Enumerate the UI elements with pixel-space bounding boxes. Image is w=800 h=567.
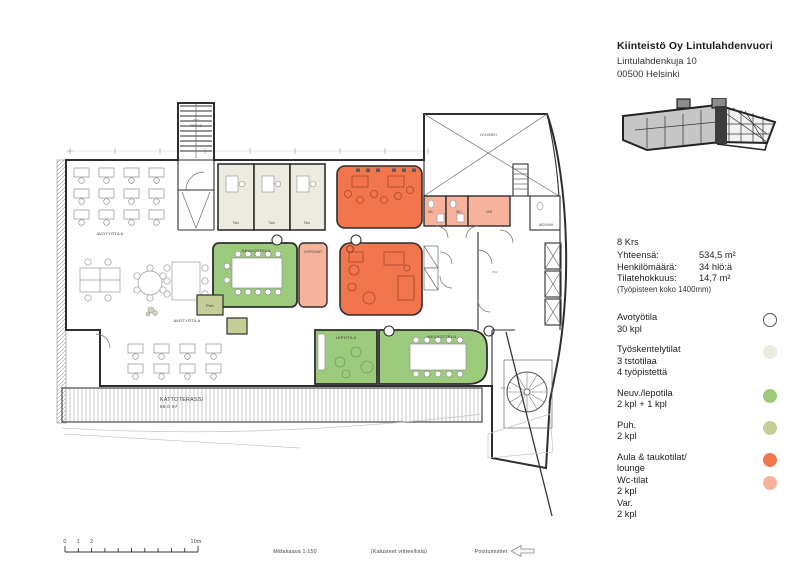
legend-line: 2 kpl + 1 kpl (617, 399, 673, 411)
legend-line: 2 kpl (617, 486, 648, 498)
legend-title: Työskentelytilat (617, 344, 681, 356)
stat-label: Yhteensä: (617, 250, 699, 260)
scale-tick-10m: 10m (191, 539, 202, 545)
label-neuvottelu-mid: NEUVOTTELU (242, 248, 271, 253)
label-tsto-3: Tsto (304, 221, 311, 225)
legend-line: 4 työpistettä (617, 367, 681, 379)
meeting-room-mid: NEUVOTTELU (213, 243, 297, 307)
legend-item-neuv-lepotila: Neuv./lepotila 2 kpl + 1 kpl (617, 388, 777, 411)
scale-tick-2: 2 (90, 539, 93, 545)
label-wc-2: WC (456, 210, 462, 214)
label-neuvottelu-bottom: NEUVOTTELU (428, 334, 457, 339)
floor-plan-sheet: KATTOTERASSI 88,0 m² 803 PR H B AVOTYÖTI… (0, 0, 800, 567)
lepotila-room: LEPOTILA (315, 330, 377, 384)
iv-machine-room: IV-KONEH. (424, 114, 559, 196)
dimension-ticks (66, 148, 430, 154)
kitchen-cabinets (424, 246, 452, 290)
legend-swatch-lounge (763, 453, 777, 467)
stairwell-a: PR H A (488, 330, 553, 516)
legend-line: 2 kpl (617, 509, 637, 521)
stat-value: 534,5 m² (699, 250, 779, 260)
legend-swatch-office (763, 345, 777, 359)
lounge-mid (340, 243, 422, 315)
scale-tick-0: 0 (63, 539, 66, 545)
legend-title: Avotyötila (617, 312, 657, 324)
corridor-walls: 802 (478, 230, 561, 330)
label-puh: Puh (206, 303, 214, 308)
stat-label: Henkilömäärä: (617, 262, 699, 272)
legend-line: 3 tstotilaa (617, 356, 681, 368)
company-name: Kiinteistö Oy Lintulahdenvuori (617, 40, 773, 52)
stairwell-b: 803 PR H B (178, 104, 214, 230)
floor-number: 8 Krs (617, 237, 779, 247)
legend-swatch-open-circle (763, 313, 777, 327)
legend-item-tyoskentelytilat: Työskentelytilat 3 tstotilaa 4 työpistet… (617, 344, 777, 379)
legend-title: Var. (617, 498, 637, 510)
legend-item-avotyotila: Avotyötila 30 kpl (617, 312, 777, 335)
legend-line: 2 kpl (617, 431, 637, 443)
label-stair-a: PR H A (501, 386, 511, 390)
legend-title: Wc-tilat (617, 475, 648, 487)
legend-swatch-phone (763, 421, 777, 435)
legend-swatch-meeting (763, 389, 777, 403)
label-avotyotila-top: AVOTYÖTILA (97, 231, 124, 236)
key-plan-thumbnail (617, 98, 779, 158)
label-room-802: 802 (492, 270, 497, 274)
label-wc-inva: WC/INVA (539, 223, 554, 227)
label-wc-1: WC (428, 210, 434, 214)
legend-title: Aula & taukotilat/ (617, 452, 687, 464)
stat-row-total: Yhteensä: 534,5 m² (617, 250, 779, 260)
legend-swatch-wc (763, 476, 777, 490)
legend-item-wc: Wc-tilat 2 kpl (617, 475, 777, 498)
label-iv-room: IV-KONEH. (480, 133, 498, 137)
exit-arrow-icon (511, 546, 534, 557)
open-office-top-desks: AVOTYÖTILA (74, 168, 164, 236)
exits-label: Poistumistiet (475, 549, 508, 555)
legend-line: lounge (617, 463, 687, 475)
legend-title: Neuv./lepotila (617, 388, 673, 400)
roof-terrace: KATTOTERASSI 88,0 m² (62, 388, 482, 448)
legend: Avotyötila 30 kpl Työskentelytilat 3 tst… (617, 312, 777, 530)
tsto-offices: Tsto Tsto Tsto (218, 164, 325, 230)
footer: 0 1 2 10m Mittakaava 1:150 (Kalusteet vi… (63, 539, 534, 557)
stat-row-efficiency: Tilatehokkuus: 14,7 m² (617, 273, 779, 283)
address-line2: 00500 Helsinki (617, 69, 679, 80)
west-facade-hatch (57, 160, 66, 423)
furniture-note: (Kalusteet viitteellisiä) (371, 549, 427, 555)
workstation-note: (Työpisteen koko 1400mm) (617, 285, 779, 294)
label-terrace: KATTOTERASSI (160, 397, 203, 403)
label-stair-b-num: 803 (193, 118, 198, 122)
kopio-var-room: KOPIO/VAR (299, 243, 327, 307)
label-tsto-1: Tsto (233, 221, 240, 225)
legend-item-aula-lounge: Aula & taukotilat/ lounge (617, 452, 777, 475)
wc-var-block: WC WC VAR WC/INVA (424, 164, 560, 243)
legend-item-var: Var. 2 kpl (617, 498, 777, 521)
scale-label: Mittakaava 1:150 (273, 549, 317, 555)
label-lepotila: LEPOTILA (336, 335, 357, 340)
meeting-room-bottom: NEUVOTTELU (379, 330, 487, 384)
label-terrace-area: 88,0 m² (160, 404, 178, 409)
scale-bar (65, 546, 198, 552)
legend-title: Puh. (617, 420, 637, 432)
info-panel: Kiinteistö Oy Lintulahdenvuori Lintulahd… (617, 0, 779, 567)
stat-row-people: Henkilömäärä: 34 hlö:ä (617, 262, 779, 272)
label-stair-b: PR H B (190, 124, 202, 128)
legend-line: 30 kpl (617, 324, 657, 336)
label-kopio-var: KOPIO/VAR (304, 250, 322, 254)
lounge-top (337, 166, 422, 228)
legend-item-puh: Puh. 2 kpl (617, 420, 777, 443)
floor-stats: 8 Krs Yhteensä: 534,5 m² Henkilömäärä: 3… (617, 237, 779, 294)
stat-value: 14,7 m² (699, 273, 779, 283)
open-office-bottom-desks (96, 334, 221, 379)
scale-tick-1: 1 (77, 539, 80, 545)
label-avotyotila-mid: AVOTYÖTILA (174, 318, 201, 323)
stat-label: Tilatehokkuus: (617, 273, 699, 283)
address-line1: Lintulahdenkuja 10 (617, 56, 697, 67)
stat-value: 34 hlö:ä (699, 262, 779, 272)
label-tsto-2: Tsto (269, 221, 276, 225)
label-var: VAR (486, 210, 493, 214)
